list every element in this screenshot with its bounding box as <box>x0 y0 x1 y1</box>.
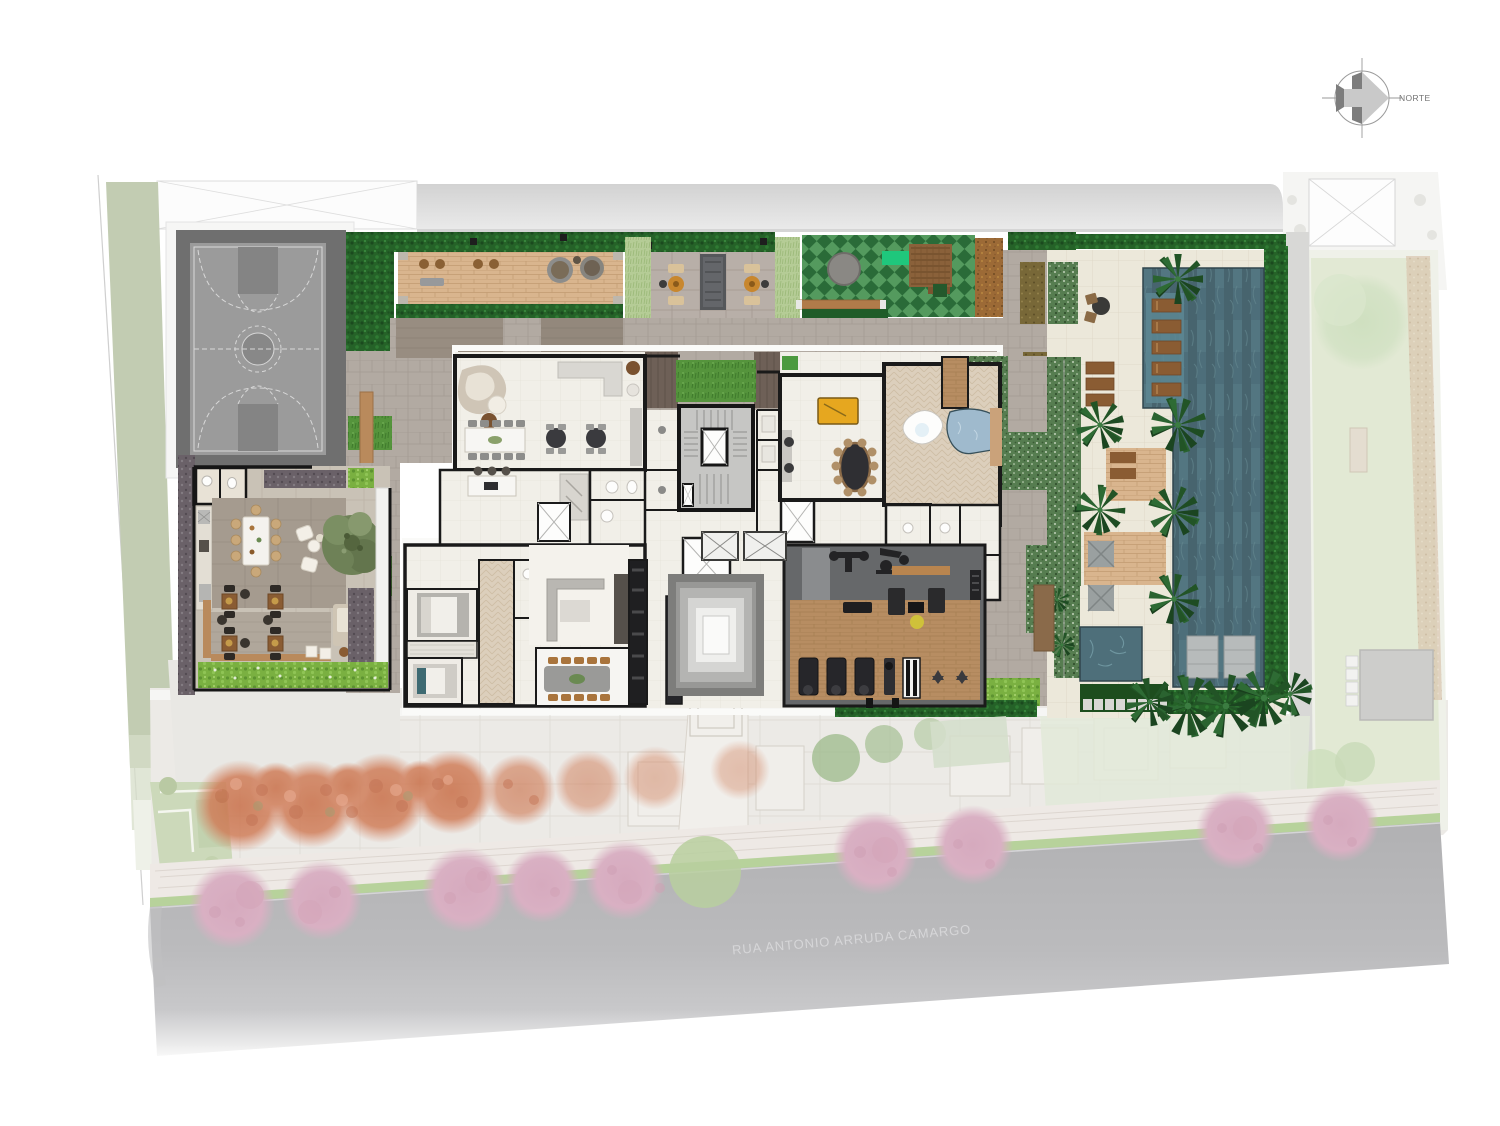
svg-text:NORTE: NORTE <box>1399 93 1431 103</box>
